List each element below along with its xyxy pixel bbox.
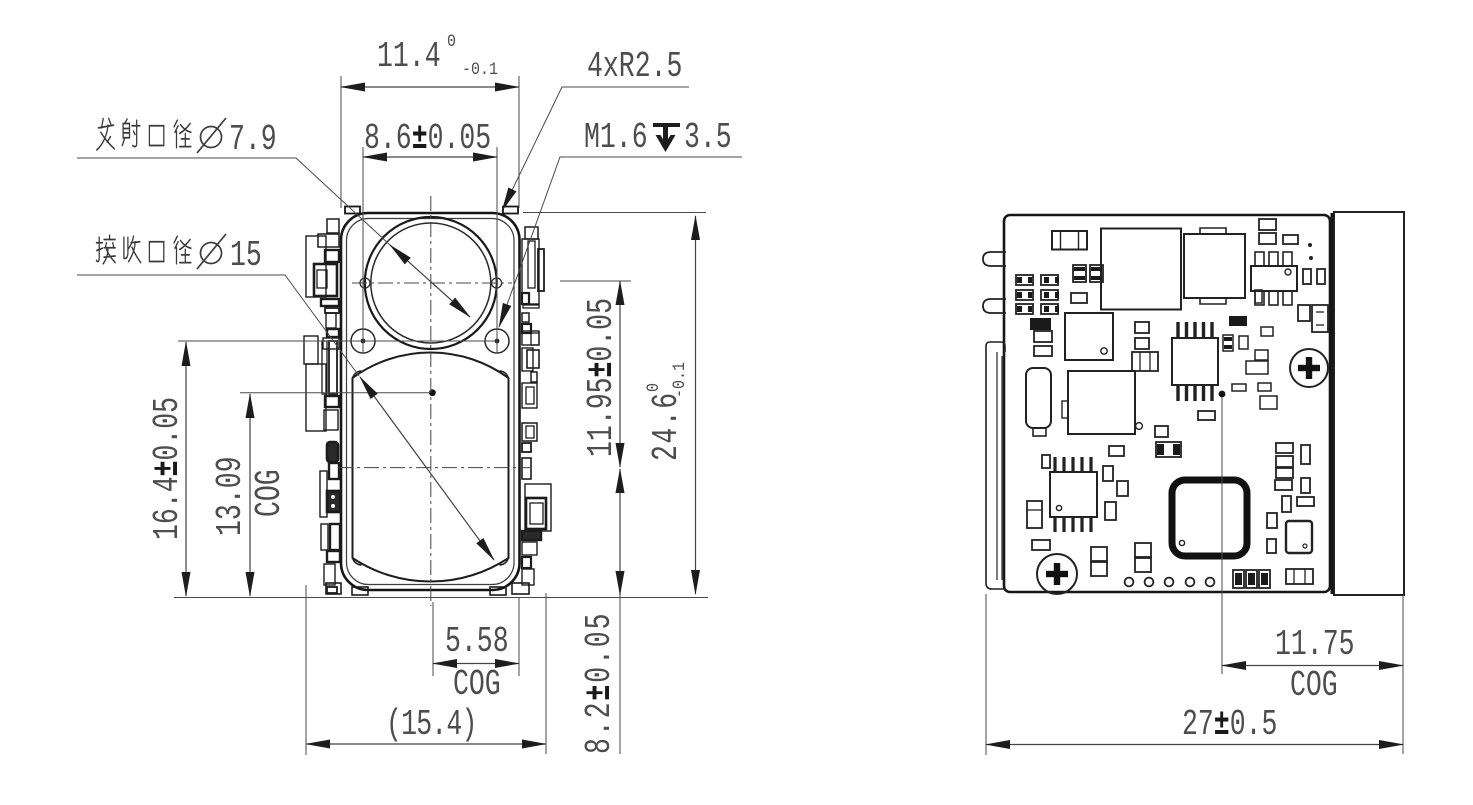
svg-text:0: 0 [643, 383, 664, 392]
svg-text:24.6: 24.6 [648, 391, 688, 461]
svg-text:COG: COG [1290, 667, 1338, 707]
svg-text:0: 0 [447, 31, 456, 52]
svg-text:15: 15 [230, 237, 262, 277]
svg-text:11.4: 11.4 [377, 38, 441, 78]
svg-text:5.58: 5.58 [445, 623, 509, 663]
svg-text:16.4±0.05: 16.4±0.05 [149, 397, 189, 540]
svg-text:(15.4): (15.4) [386, 706, 477, 746]
svg-text:COG: COG [453, 666, 501, 706]
svg-text:13.09: 13.09 [212, 457, 252, 536]
svg-text:3.5: 3.5 [684, 119, 732, 159]
svg-text:11.75: 11.75 [1275, 626, 1354, 666]
svg-text:M1.6: M1.6 [584, 119, 648, 159]
svg-text:4xR2.5: 4xR2.5 [587, 48, 682, 88]
svg-text:-0.1: -0.1 [462, 59, 498, 80]
svg-text:8.6±0.05: 8.6±0.05 [364, 120, 491, 160]
svg-text:11.95±0.05: 11.95±0.05 [583, 298, 623, 457]
svg-text:7.9: 7.9 [229, 121, 277, 161]
svg-text:27±0.5: 27±0.5 [1182, 706, 1277, 746]
svg-text:COG: COG [251, 469, 291, 517]
svg-text:8.2±0.05: 8.2±0.05 [581, 612, 621, 754]
svg-text:-0.1: -0.1 [669, 362, 690, 398]
